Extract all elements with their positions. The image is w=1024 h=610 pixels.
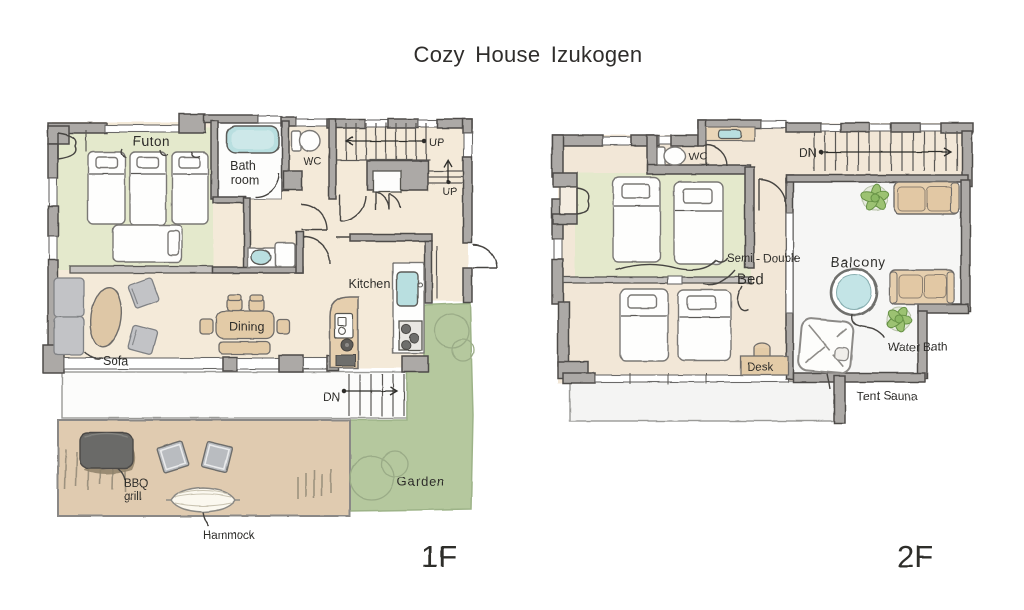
svg-text:Semi - Double: Semi - Double [727, 253, 800, 265]
svg-text:Balcony: Balcony [831, 255, 886, 270]
svg-text:Desk: Desk [747, 362, 773, 374]
svg-text:BBQ: BBQ [124, 478, 148, 490]
svg-text:Futon: Futon [133, 134, 170, 149]
svg-text:1F: 1F [421, 539, 457, 574]
svg-text:Dining: Dining [229, 320, 264, 334]
svg-text:2F: 2F [897, 539, 933, 574]
svg-text:UP: UP [442, 186, 457, 198]
svg-text:Kitchen: Kitchen [348, 277, 391, 291]
svg-text:Tent Sauna: Tent Sauna [857, 389, 918, 403]
svg-text:Water Bath: Water Bath [888, 340, 948, 354]
svg-text:Bath: Bath [230, 159, 256, 173]
svg-text:DN: DN [799, 146, 816, 160]
svg-text:Cozy House Izukogen: Cozy House Izukogen [414, 42, 643, 67]
svg-text:Bed: Bed [737, 271, 764, 288]
svg-text:grill: grill [124, 491, 142, 503]
svg-text:DN: DN [323, 390, 340, 404]
svg-text:Sofa: Sofa [103, 354, 129, 368]
svg-text:WC: WC [303, 156, 321, 168]
svg-text:room: room [231, 173, 259, 187]
svg-text:Garden: Garden [397, 474, 445, 489]
svg-text:WC: WC [689, 151, 707, 163]
svg-text:UP: UP [429, 137, 444, 149]
svg-text:Hammock: Hammock [203, 530, 255, 542]
